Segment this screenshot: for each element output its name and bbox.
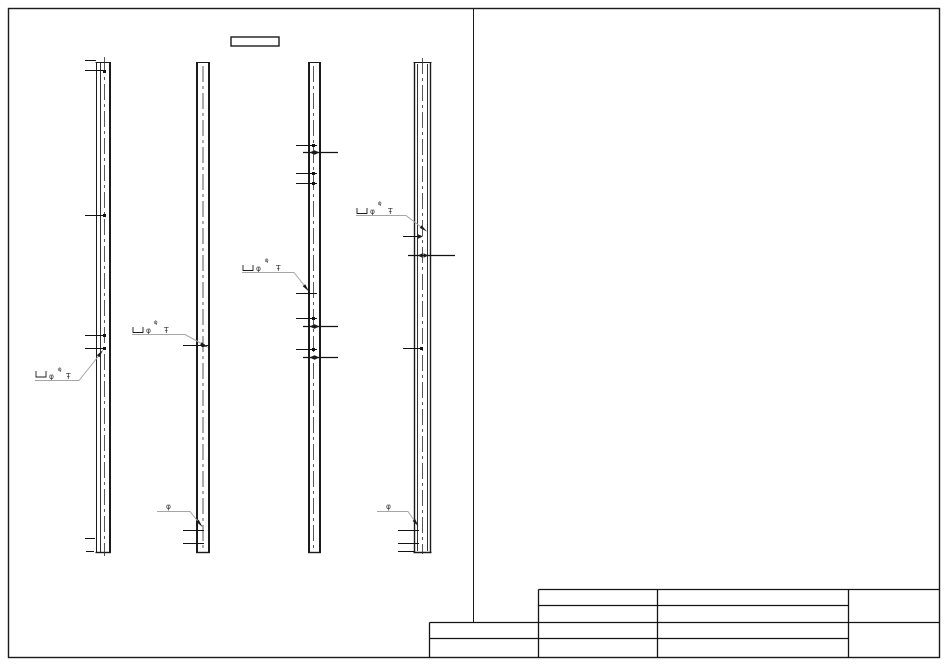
callout-simple-1: φ: [157, 502, 203, 527]
splice-arrow-right: [315, 324, 320, 328]
diameter-superscript: φ: [376, 199, 383, 207]
diameter-superscript: φ: [263, 256, 270, 264]
node-dot: [103, 70, 106, 73]
cad-canvas: φ φ Ŧ φ φ Ŧ φ φ Ŧ φ φ Ŧ φ φ: [0, 0, 950, 667]
node-dot: [312, 144, 315, 147]
node-dot: [312, 317, 315, 320]
node-dot: [312, 182, 315, 185]
leader-line: [377, 512, 416, 524]
diameter-symbol: φ: [386, 502, 391, 511]
level-mark: Ŧ: [163, 326, 169, 335]
callout-full-3: φ φ Ŧ: [242, 256, 309, 291]
flat-bar-bracket-icon: [36, 371, 46, 377]
title-block: [430, 590, 940, 658]
node-dot: [103, 347, 106, 350]
leader-arrowhead: [97, 350, 103, 357]
pile-column-2: [183, 62, 210, 553]
splice-arrow-right: [315, 355, 320, 359]
flat-bar-bracket-icon: [357, 208, 367, 214]
diameter-symbol: φ: [49, 372, 54, 381]
splice-arrow-left: [418, 253, 423, 257]
node-dot: [312, 172, 315, 175]
pile-column-1: [85, 57, 111, 556]
level-mark: Ŧ: [275, 264, 281, 273]
flat-bar-bracket-icon: [133, 327, 143, 333]
flat-bar-bracket-icon: [243, 265, 253, 271]
callout-full-1: φ φ Ŧ: [35, 350, 103, 381]
leader-line: [157, 512, 200, 525]
diameter-symbol: φ: [256, 264, 261, 273]
pile-column-4: [398, 58, 455, 554]
node-dot: [103, 214, 106, 217]
callout-simple-2: φ: [377, 502, 419, 527]
node-dot: [312, 348, 315, 351]
drawing-sheet: φ φ Ŧ φ φ Ŧ φ φ Ŧ φ φ Ŧ φ φ: [0, 0, 950, 667]
node-dot: [103, 334, 106, 337]
diameter-superscript: φ: [152, 318, 159, 326]
diameter-superscript: φ: [56, 365, 63, 373]
node-dot: [420, 347, 423, 350]
level-mark: Ŧ: [387, 207, 393, 216]
splice-arrow-left: [310, 355, 315, 359]
leader-line: [132, 335, 206, 347]
diameter-symbol: φ: [166, 502, 171, 511]
leader-line: [242, 273, 307, 290]
splice-arrow-right: [315, 150, 320, 154]
diameter-symbol: φ: [370, 207, 375, 216]
splice-arrow-left: [310, 324, 315, 328]
level-mark: Ŧ: [65, 372, 71, 381]
drawing-label-box: [231, 37, 279, 46]
splice-arrow-left: [310, 150, 315, 154]
callout-full-4: φ φ Ŧ: [356, 199, 427, 231]
diameter-symbol: φ: [146, 326, 151, 335]
pile-column-3: [296, 62, 338, 553]
